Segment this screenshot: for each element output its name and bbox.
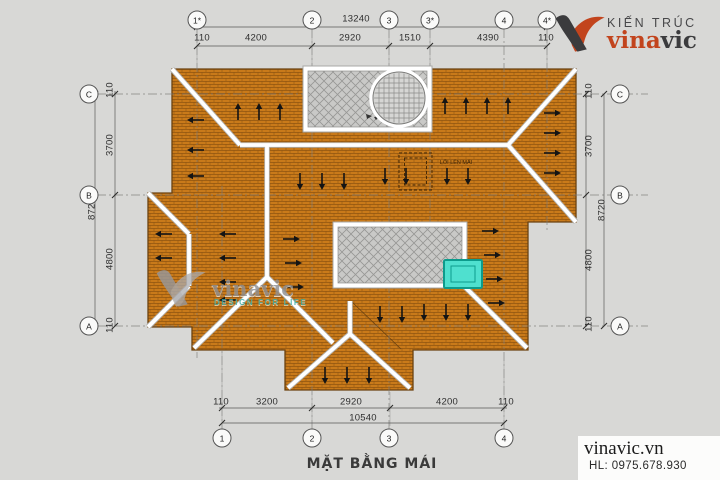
dim-right-seg: 3700: [584, 135, 595, 157]
grid-bubble-left: A: [80, 317, 99, 336]
dim-right-seg: 4800: [584, 249, 595, 271]
water-tank: [444, 260, 482, 288]
dim-top-seg: 4390: [477, 33, 499, 44]
dim-top-total: 13240: [342, 14, 369, 25]
dim-bottom-seg: 110: [498, 397, 514, 408]
dim-top-seg: 1510: [399, 33, 421, 44]
vinavic-logo-icon: [551, 10, 607, 56]
grid-bubble-top: 3: [380, 11, 399, 30]
grid-bubble-right: B: [611, 186, 630, 205]
dim-left-seg: 110: [105, 82, 116, 98]
grid-bubble-left: B: [80, 186, 99, 205]
logo-brand-vina: vina: [607, 27, 661, 54]
grid-bubble-left: C: [80, 85, 99, 104]
logo-brand: vinavic: [607, 29, 697, 53]
roof-plan-sheet: 110 4200 2920 1510 4390 110 13240 110 32…: [0, 0, 720, 480]
dim-bottom-total: 10540: [349, 413, 376, 424]
roof-plan-drawing: [0, 0, 720, 480]
grid-bubble-bottom: 2: [303, 429, 322, 448]
dim-left-seg: 3700: [105, 134, 116, 156]
grid-bubble-right: C: [611, 85, 630, 104]
dim-right-seg: 110: [584, 83, 595, 99]
grid-bubble-top: 2: [303, 11, 322, 30]
dim-top-seg: 110: [194, 33, 210, 44]
dim-bottom-seg: 4200: [436, 397, 458, 408]
grid-bubble-bottom: 4: [495, 429, 514, 448]
roof-access-label: LỐI LÊN MÁI: [440, 160, 472, 166]
grid-bubble-bottom: 1: [213, 429, 232, 448]
company-logo: KIẾN TRÚC vinavic: [545, 0, 720, 62]
dim-top-seg: 4200: [245, 33, 267, 44]
contact-box: vinavic.vn HL: 0975.678.930: [578, 436, 720, 480]
dim-top-seg: 2920: [339, 33, 361, 44]
dim-right-total: 8720: [597, 199, 608, 221]
dim-left-seg: 110: [105, 317, 116, 333]
logo-brand-vic: vic: [661, 27, 697, 54]
dome-skylight: [371, 70, 427, 126]
hotline-text: HL: 0975.678.930: [589, 460, 687, 472]
dim-right-seg: 110: [584, 316, 595, 332]
grid-bubble-top: 3*: [421, 11, 440, 30]
grid-bubble-top: 1*: [188, 11, 207, 30]
drawing-title: MẶT BẰNG MÁI: [307, 456, 438, 472]
dim-bottom-seg: 3200: [256, 397, 278, 408]
grid-bubble-right: A: [611, 317, 630, 336]
website-text: vinavic.vn: [584, 438, 664, 460]
grid-bubble-top: 4: [495, 11, 514, 30]
dim-bottom-seg: 2920: [340, 397, 362, 408]
grid-bubble-bottom: 3: [380, 429, 399, 448]
dim-left-seg: 4800: [105, 248, 116, 270]
dim-bottom-seg: 110: [213, 397, 229, 408]
